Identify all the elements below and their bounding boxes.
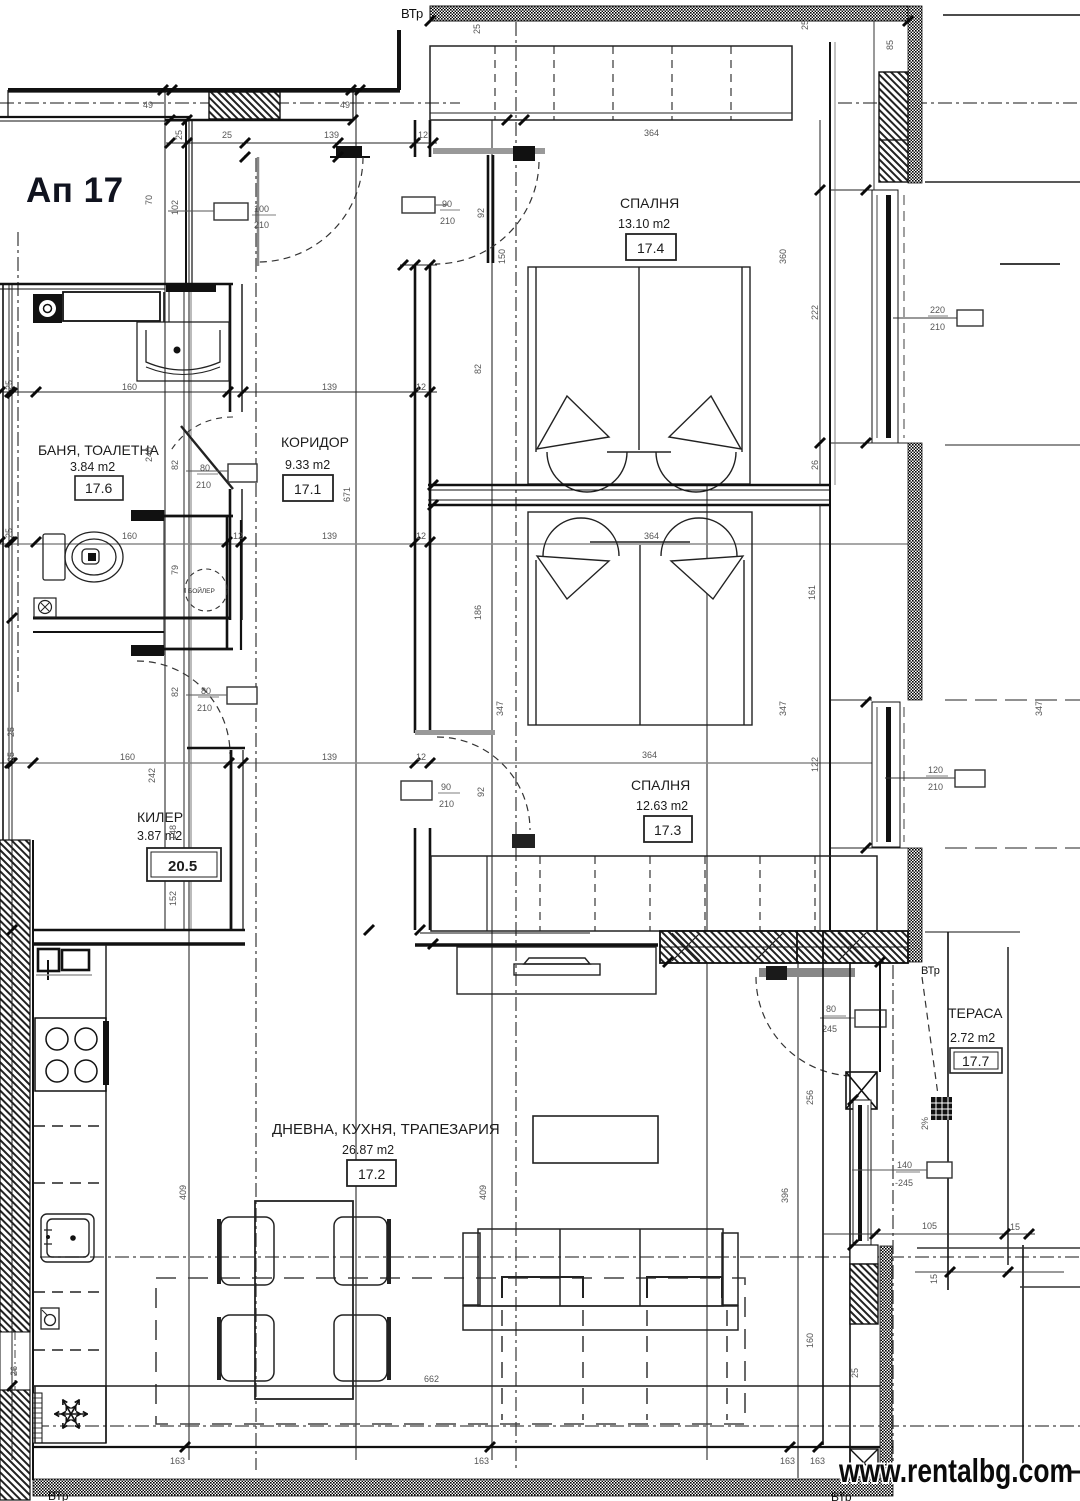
svg-text:82: 82 bbox=[170, 460, 180, 470]
svg-text:409: 409 bbox=[478, 1185, 488, 1200]
svg-text:396: 396 bbox=[780, 1188, 790, 1203]
svg-text:ВТр: ВТр bbox=[401, 6, 423, 21]
svg-text:210: 210 bbox=[928, 782, 943, 792]
svg-text:160: 160 bbox=[120, 752, 135, 762]
svg-text:ДНЕВНА, КУХНЯ, ТРАПЕЗАРИЯ: ДНЕВНА, КУХНЯ, ТРАПЕЗАРИЯ bbox=[272, 1121, 500, 1138]
svg-text:БАНЯ, ТОАЛЕТНА: БАНЯ, ТОАЛЕТНА bbox=[38, 442, 160, 458]
svg-text:17.2: 17.2 bbox=[358, 1166, 385, 1182]
svg-text:210: 210 bbox=[440, 216, 455, 226]
svg-text:2%: 2% bbox=[920, 1117, 930, 1130]
svg-text:360: 360 bbox=[778, 249, 788, 264]
svg-text:17.3: 17.3 bbox=[654, 822, 681, 838]
svg-text:2.72 m2: 2.72 m2 bbox=[950, 1031, 995, 1045]
svg-text:364: 364 bbox=[644, 531, 659, 541]
svg-text:20.5: 20.5 bbox=[168, 858, 197, 875]
svg-text:150: 150 bbox=[497, 249, 507, 264]
svg-text:ВТр: ВТр bbox=[921, 965, 940, 977]
svg-text:90: 90 bbox=[441, 782, 451, 792]
svg-text:140: 140 bbox=[897, 1160, 912, 1170]
svg-text:17.6: 17.6 bbox=[85, 480, 112, 496]
svg-text:160: 160 bbox=[122, 382, 137, 392]
svg-text:210: 210 bbox=[197, 703, 212, 713]
svg-text:26: 26 bbox=[9, 1366, 19, 1376]
svg-text:139: 139 bbox=[322, 752, 337, 762]
svg-text:17.4: 17.4 bbox=[637, 240, 664, 256]
svg-text:210: 210 bbox=[254, 220, 269, 230]
svg-text:15: 15 bbox=[1010, 1222, 1020, 1232]
svg-text:186: 186 bbox=[473, 605, 483, 620]
svg-text:220: 220 bbox=[930, 305, 945, 315]
svg-text:25: 25 bbox=[472, 24, 482, 34]
svg-text:163: 163 bbox=[810, 1456, 825, 1466]
svg-text:148: 148 bbox=[168, 825, 178, 840]
svg-text:БОЙЛЕР: БОЙЛЕР bbox=[188, 586, 215, 595]
svg-text:102: 102 bbox=[170, 200, 180, 215]
svg-text:163: 163 bbox=[474, 1456, 489, 1466]
svg-text:9.33 m2: 9.33 m2 bbox=[285, 458, 330, 472]
svg-text:12.63 m2: 12.63 m2 bbox=[636, 799, 688, 813]
svg-text:210: 210 bbox=[196, 480, 211, 490]
svg-text:Ап 17: Ап 17 bbox=[26, 171, 124, 210]
svg-text:17.1: 17.1 bbox=[294, 481, 321, 497]
svg-text:139: 139 bbox=[322, 382, 337, 392]
svg-text:26: 26 bbox=[810, 460, 820, 470]
svg-text:70: 70 bbox=[144, 195, 154, 205]
svg-text:662: 662 bbox=[424, 1374, 439, 1384]
svg-text:25: 25 bbox=[174, 130, 184, 140]
svg-text:25: 25 bbox=[850, 1368, 860, 1378]
svg-text:26.87 m2: 26.87 m2 bbox=[342, 1143, 394, 1157]
svg-text:25: 25 bbox=[6, 752, 16, 762]
svg-text:163: 163 bbox=[780, 1456, 795, 1466]
svg-text:ТЕРАСА: ТЕРАСА bbox=[948, 1005, 1003, 1021]
svg-text:163: 163 bbox=[170, 1456, 185, 1466]
svg-text:-245: -245 bbox=[895, 1178, 913, 1188]
svg-text:3.84 m2: 3.84 m2 bbox=[70, 460, 115, 474]
svg-text:364: 364 bbox=[642, 750, 657, 760]
svg-text:161: 161 bbox=[807, 585, 817, 600]
svg-text:12: 12 bbox=[233, 531, 243, 541]
svg-text:82: 82 bbox=[170, 687, 180, 697]
svg-text:17.7: 17.7 bbox=[962, 1053, 989, 1069]
svg-text:ВТр: ВТр bbox=[48, 1489, 69, 1501]
svg-text:СПАЛНЯ: СПАЛНЯ bbox=[620, 195, 679, 211]
svg-text:СПАЛНЯ: СПАЛНЯ bbox=[631, 777, 690, 793]
svg-text:25: 25 bbox=[4, 528, 14, 538]
svg-text:12: 12 bbox=[416, 752, 426, 762]
svg-text:49: 49 bbox=[143, 100, 153, 110]
svg-text:160: 160 bbox=[805, 1333, 815, 1348]
svg-text:160: 160 bbox=[122, 531, 137, 541]
svg-text:240: 240 bbox=[144, 447, 154, 462]
svg-text:139: 139 bbox=[322, 531, 337, 541]
svg-text:210: 210 bbox=[930, 322, 945, 332]
svg-text:25: 25 bbox=[6, 727, 16, 737]
svg-text:120: 120 bbox=[928, 765, 943, 775]
svg-text:347: 347 bbox=[1034, 701, 1044, 716]
svg-text:80: 80 bbox=[200, 463, 210, 473]
svg-text:79: 79 bbox=[170, 565, 180, 575]
svg-text:347: 347 bbox=[778, 701, 788, 716]
svg-text:364: 364 bbox=[644, 128, 659, 138]
svg-text:256: 256 bbox=[805, 1090, 815, 1105]
svg-text:ВТр: ВТр bbox=[831, 1490, 852, 1501]
svg-text:152: 152 bbox=[168, 891, 178, 906]
svg-text:210: 210 bbox=[439, 799, 454, 809]
svg-text:КОРИДОР: КОРИДОР bbox=[281, 434, 349, 450]
svg-text:25: 25 bbox=[222, 130, 232, 140]
svg-text:222: 222 bbox=[810, 305, 820, 320]
svg-text:13.10 m2: 13.10 m2 bbox=[618, 217, 670, 231]
svg-text:25: 25 bbox=[800, 20, 810, 30]
svg-text:82: 82 bbox=[473, 364, 483, 374]
svg-text:www.rentalbg.com: www.rentalbg.com bbox=[838, 1452, 1073, 1489]
svg-text:80: 80 bbox=[826, 1004, 836, 1014]
svg-text:КИЛЕР: КИЛЕР bbox=[137, 809, 183, 825]
svg-text:139: 139 bbox=[324, 130, 339, 140]
svg-text:92: 92 bbox=[476, 787, 486, 797]
svg-text:105: 105 bbox=[922, 1221, 937, 1231]
svg-text:25: 25 bbox=[4, 380, 14, 390]
svg-text:15: 15 bbox=[929, 1274, 939, 1284]
svg-text:671: 671 bbox=[342, 487, 352, 502]
svg-text:245: 245 bbox=[822, 1024, 837, 1034]
svg-text:242: 242 bbox=[147, 768, 157, 783]
svg-text:12: 12 bbox=[418, 130, 428, 140]
svg-text:100: 100 bbox=[254, 204, 269, 214]
svg-text:92: 92 bbox=[476, 208, 486, 218]
svg-text:80: 80 bbox=[201, 686, 211, 696]
svg-text:90: 90 bbox=[442, 199, 452, 209]
svg-text:85: 85 bbox=[885, 40, 895, 50]
svg-text:347: 347 bbox=[495, 701, 505, 716]
svg-text:409: 409 bbox=[178, 1185, 188, 1200]
svg-text:12: 12 bbox=[416, 531, 426, 541]
svg-text:12: 12 bbox=[416, 382, 426, 392]
svg-text:49: 49 bbox=[340, 100, 350, 110]
svg-text:122: 122 bbox=[810, 757, 820, 772]
